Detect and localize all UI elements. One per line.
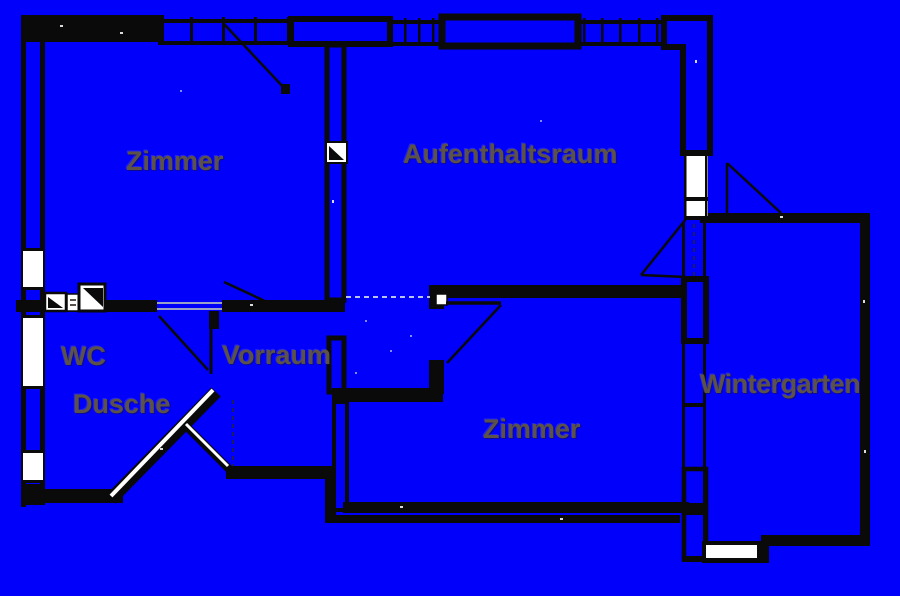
room-label-aufenthaltsraum: Aufenthaltsraum: [403, 141, 618, 168]
wc-fixtures: [45, 284, 105, 311]
wc-door-swing: [159, 316, 208, 370]
room-label-zimmer-2: Zimmer: [483, 416, 581, 443]
floorplan-canvas: Zimmer Aufenthaltsraum WC Dusche Vorraum…: [0, 0, 900, 596]
door-hinge-marker: [281, 84, 290, 94]
door-hinge-marker: [436, 294, 447, 305]
room-label-wintergarten: Wintergarten: [700, 371, 860, 398]
left-outer-wall: [21, 15, 46, 507]
partition-zimmer1-aufenthaltsraum: [326, 45, 347, 300]
bottom-zimmer-walls: [325, 285, 689, 523]
scan-noise: [60, 25, 866, 520]
room-label-wc: WC: [61, 343, 106, 370]
room-label-dusche: Dusche: [73, 391, 171, 418]
wintergarten-walls: [641, 152, 870, 563]
floorplan-drawing: [0, 0, 900, 596]
sink-symbol-small: [45, 293, 66, 311]
wintergarten-bottom-window: [702, 541, 769, 563]
pillar: [684, 279, 706, 341]
bottom-zimmer-door: [436, 294, 501, 363]
shaft-symbol-partition: [326, 142, 347, 163]
corner-l-wall: [664, 18, 710, 153]
top-window-zimmer1: [158, 17, 292, 94]
top-wall-aufenthaltsraum: [291, 17, 710, 153]
room-label-zimmer-1: Zimmer: [126, 148, 224, 175]
corridor-bottom-wall: [226, 466, 332, 479]
top-wall-zimmer1: [24, 15, 292, 94]
room-label-vorraum: Vorraum: [222, 342, 331, 369]
wintergarten-door-strip: [684, 152, 708, 220]
appliance-symbol: [67, 294, 79, 311]
